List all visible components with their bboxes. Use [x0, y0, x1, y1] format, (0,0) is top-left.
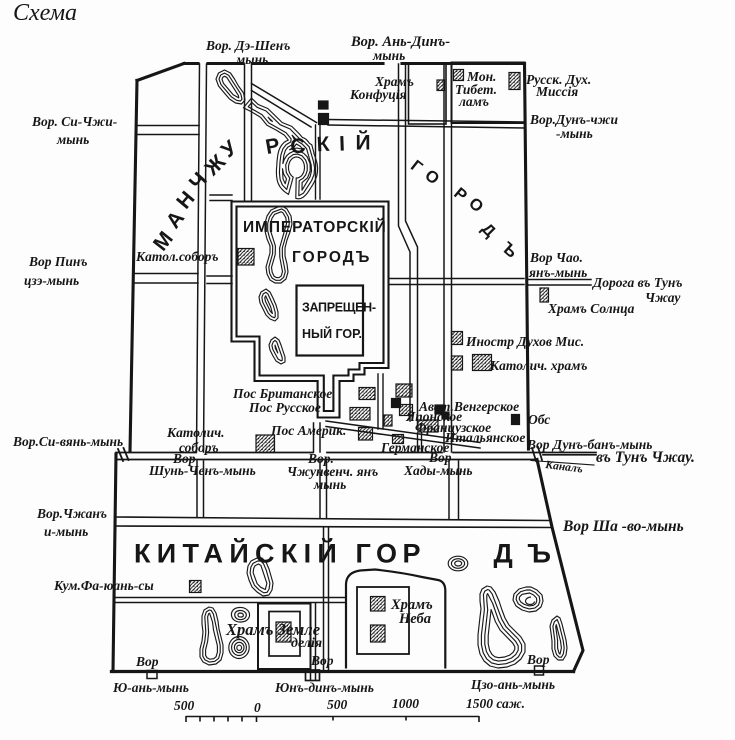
- svg-text:Цзо-ань-мынь: Цзо-ань-мынь: [470, 677, 555, 692]
- svg-text:Вор.Си-вянь-мынь: Вор.Си-вянь-мынь: [12, 434, 123, 449]
- svg-text:Ю-ань-мынь: Ю-ань-мынь: [112, 680, 189, 695]
- svg-text:-мынь: -мынь: [556, 126, 593, 141]
- svg-text:Вор Чао.: Вор Чао.: [529, 250, 583, 265]
- svg-text:ГОРОДЪ: ГОРОДЪ: [292, 249, 372, 266]
- svg-text:Вор.Дунъ-чжи: Вор.Дунъ-чжи: [529, 112, 618, 127]
- svg-text:500: 500: [327, 697, 348, 712]
- svg-text:К: К: [316, 133, 330, 157]
- svg-text:Юнъ-динъ-мынь: Юнъ-динъ-мынь: [274, 680, 374, 695]
- svg-text:1000: 1000: [392, 696, 419, 711]
- svg-text:Пос Америк.: Пос Америк.: [270, 423, 346, 438]
- svg-text:0: 0: [254, 700, 261, 715]
- svg-text:Итальянское: Итальянское: [444, 430, 525, 445]
- svg-text:Конфуція: Конфуція: [349, 87, 406, 102]
- svg-text:Вор.Чжанъ: Вор.Чжанъ: [36, 506, 107, 521]
- svg-text:Катол.соборъ: Катол.соборъ: [135, 249, 219, 264]
- svg-text:Вор. Дэ-Шенъ: Вор. Дэ-Шенъ: [205, 38, 290, 53]
- svg-text:Храмъ Солнца: Храмъ Солнца: [547, 301, 635, 316]
- svg-text:Обс: Обс: [528, 412, 550, 427]
- svg-text:цзэ-мынь: цзэ-мынь: [24, 273, 79, 288]
- svg-text:Кум.Фа-юань-сы: Кум.Фа-юань-сы: [53, 578, 154, 593]
- svg-text:500: 500: [174, 698, 195, 713]
- svg-text:Иностр Духов Мис.: Иностр Духов Мис.: [465, 334, 584, 349]
- svg-text:Шунь-Ченъ-мынь: Шунь-Ченъ-мынь: [148, 463, 256, 478]
- svg-text:Пос Британское: Пос Британское: [232, 386, 332, 401]
- svg-text:І: І: [339, 132, 346, 155]
- svg-text:Чжау: Чжау: [645, 290, 681, 305]
- svg-text:ЗАПРЕЩЕН-: ЗАПРЕЩЕН-: [302, 301, 377, 315]
- svg-text:Дорога въ Тунъ: Дорога въ Тунъ: [591, 275, 682, 290]
- svg-text:и-мынь: и-мынь: [44, 524, 88, 539]
- svg-text:Вор: Вор: [310, 653, 334, 668]
- svg-text:делія: делія: [291, 636, 322, 651]
- svg-text:ламъ: ламъ: [458, 94, 489, 109]
- svg-text:Католич. храмъ: Католич. храмъ: [489, 358, 588, 373]
- svg-text:Д: Д: [494, 539, 513, 569]
- svg-text:Миссія: Миссія: [535, 84, 578, 99]
- svg-text:Й: Й: [355, 131, 370, 155]
- svg-text:Схема: Схема: [13, 0, 77, 26]
- svg-text:Неба: Неба: [398, 611, 431, 627]
- svg-text:ИМПЕРАТОРСКІЙ: ИМПЕРАТОРСКІЙ: [243, 218, 387, 236]
- svg-text:въ Тунъ Чжау.: въ Тунъ Чжау.: [596, 449, 695, 466]
- svg-text:Вор Ша -во-мынь: Вор Ша -во-мынь: [562, 518, 684, 535]
- svg-text:Вор: Вор: [526, 652, 550, 667]
- svg-text:Вор: Вор: [135, 654, 159, 669]
- svg-text:мынь: мынь: [372, 48, 405, 63]
- svg-text:С: С: [289, 134, 306, 158]
- svg-text:Католич.: Католич.: [166, 425, 225, 440]
- svg-text:мынь: мынь: [313, 477, 346, 492]
- svg-text:Вор Пинъ: Вор Пинъ: [28, 254, 88, 269]
- svg-text:Ъ: Ъ: [528, 539, 551, 569]
- svg-text:янъ-мынь: янъ-мынь: [528, 265, 587, 280]
- svg-text:ГОР: ГОР: [356, 539, 433, 569]
- svg-text:мынь: мынь: [235, 52, 268, 67]
- svg-text:мынь: мынь: [56, 132, 89, 147]
- svg-text:НЫЙ ГОР.: НЫЙ ГОР.: [302, 326, 363, 341]
- svg-text:Пос Русское: Пос Русское: [248, 400, 321, 415]
- svg-text:Вор. Си-Чжи-: Вор. Си-Чжи-: [31, 114, 118, 129]
- svg-text:Хады-мынь: Хады-мынь: [403, 463, 473, 478]
- svg-text:КИТАЙСКІЙ: КИТАЙСКІЙ: [134, 538, 343, 569]
- svg-text:1500 саж.: 1500 саж.: [466, 696, 525, 711]
